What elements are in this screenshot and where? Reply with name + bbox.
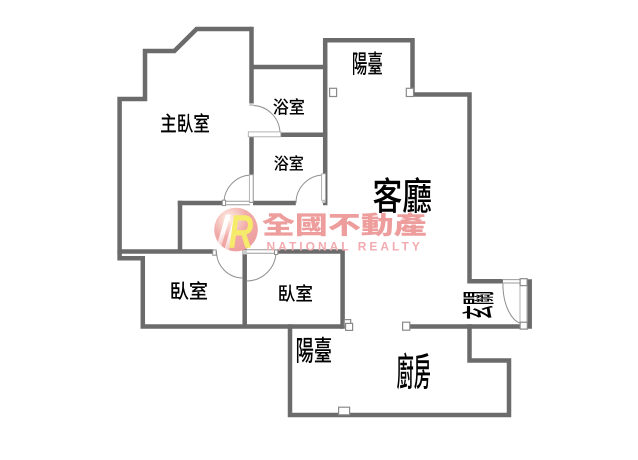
svg-text:NATIONAL REALTY: NATIONAL REALTY bbox=[267, 240, 423, 254]
svg-text:R: R bbox=[229, 206, 254, 259]
